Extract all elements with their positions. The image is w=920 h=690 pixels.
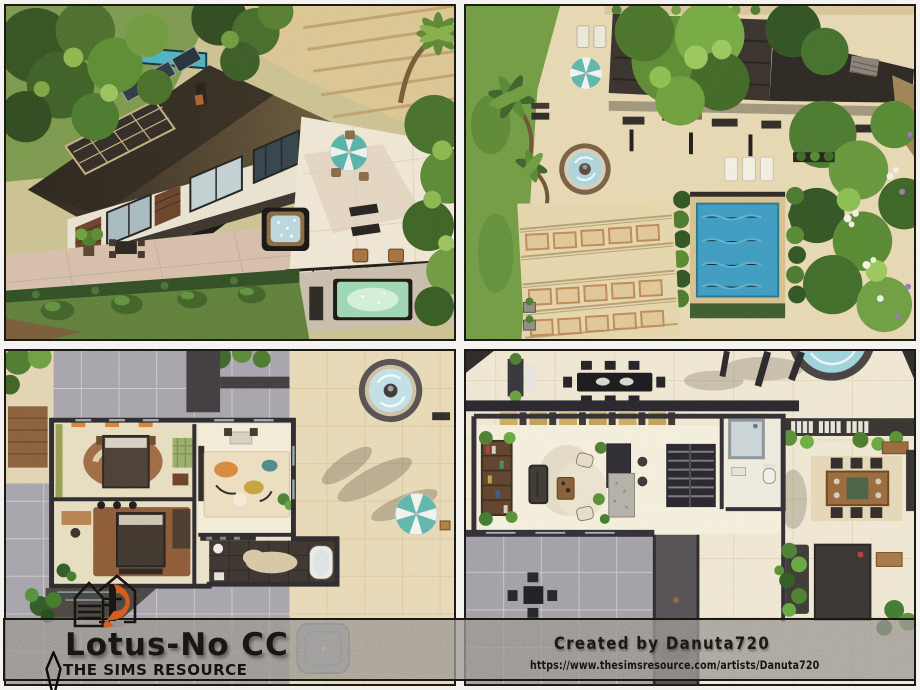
exterior-aerial-art (6, 6, 454, 339)
site-name-text: THE SIMS RESOURCE (63, 663, 247, 678)
backyard-top-down-art (466, 6, 914, 339)
danuta720-logo-icon (72, 574, 148, 632)
creator-credit-text: Created by Danuta720 (520, 636, 803, 653)
creator-credit-block: Created by Danuta720 https://www.thesims… (501, 620, 823, 672)
plumbob-icon (45, 651, 62, 690)
danuta720-logo (72, 574, 148, 632)
screenshot-backyard-top-down (464, 4, 916, 341)
artist-url-text: https://www.thesimsresource.com/artists/… (530, 660, 794, 672)
screenshot-exterior-aerial (4, 4, 456, 341)
build-title: Lotus-No CC (65, 630, 289, 661)
promo-collage: Lotus-No CC THE SIMS RESOURCE Created by… (0, 0, 920, 690)
